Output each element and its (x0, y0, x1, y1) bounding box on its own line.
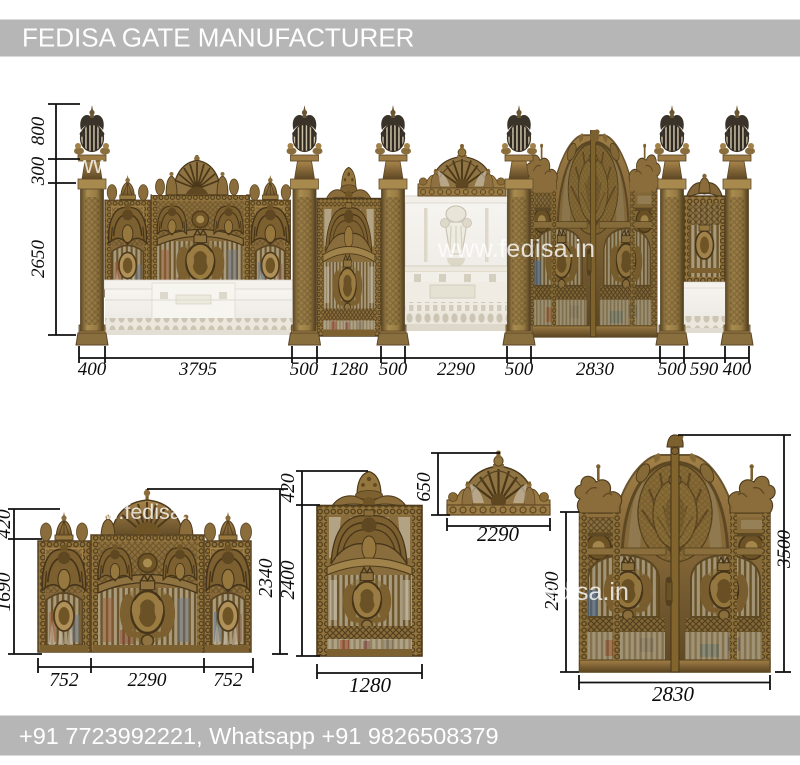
svg-text:2650: 2650 (28, 240, 49, 279)
svg-text:752: 752 (49, 670, 79, 691)
svg-text:500: 500 (290, 359, 319, 380)
svg-text:www.fedisa.in: www.fedisa.in (72, 500, 204, 524)
svg-text:2290: 2290 (437, 359, 476, 380)
svg-text:650: 650 (414, 472, 435, 502)
svg-text:590: 590 (690, 359, 719, 380)
svg-text:420: 420 (0, 509, 15, 539)
svg-text:3795: 3795 (178, 359, 217, 380)
svg-text:500: 500 (379, 359, 408, 380)
svg-text:800: 800 (28, 116, 49, 145)
svg-text:1690: 1690 (0, 572, 15, 611)
svg-text:+91 7723992221, Whatsapp +91 9: +91 7723992221, Whatsapp +91 9826508379 (19, 723, 499, 749)
svg-text:500: 500 (505, 359, 534, 380)
svg-text:1280: 1280 (349, 673, 392, 697)
svg-text:3500: 3500 (774, 530, 795, 570)
svg-text:www.fedisa.in: www.fedisa.in (475, 578, 629, 606)
svg-text:400: 400 (723, 359, 752, 380)
svg-text:420: 420 (278, 473, 299, 503)
svg-text:752: 752 (213, 670, 243, 691)
svg-text:2340: 2340 (256, 558, 277, 597)
svg-text:www.fed: www.fed (75, 152, 167, 179)
svg-text:2830: 2830 (576, 359, 615, 380)
svg-text:300: 300 (28, 156, 49, 186)
svg-text:1280: 1280 (330, 359, 369, 380)
svg-text:2290: 2290 (128, 670, 167, 691)
svg-text:500: 500 (658, 359, 687, 380)
svg-text:400: 400 (78, 359, 107, 380)
svg-text:2830: 2830 (652, 682, 695, 706)
svg-text:FEDISA GATE MANUFACTURER: FEDISA GATE MANUFACTURER (22, 23, 414, 53)
svg-text:www.fedisa.in: www.fedisa.in (437, 235, 595, 263)
svg-text:2290: 2290 (477, 522, 520, 546)
svg-text:2400: 2400 (278, 560, 299, 599)
